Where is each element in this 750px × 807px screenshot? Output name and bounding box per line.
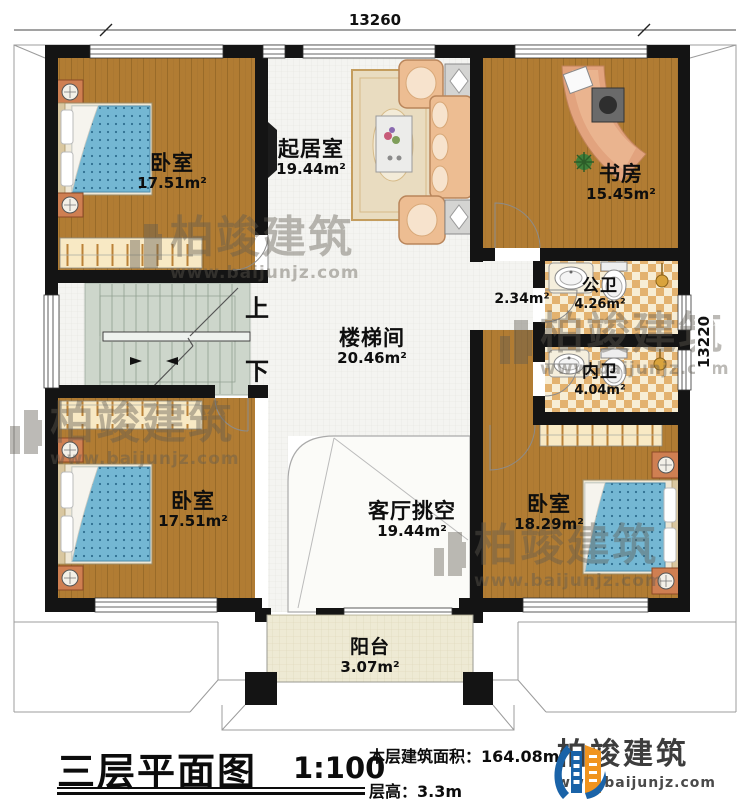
stairs-down-label: 下 — [245, 352, 269, 387]
title-block: 三层平面图 1:100 本层建筑面积：164.08m² 层高：3.3m 柏竣建筑… — [0, 735, 750, 807]
shower-head — [656, 275, 668, 287]
wardrobe — [60, 238, 202, 268]
floor-height-value: 3.3m — [417, 782, 462, 801]
toilet — [601, 349, 627, 358]
plan-info: 本层建筑面积：164.08m² 层高：3.3m — [369, 743, 566, 802]
floor-plan-drawing — [0, 0, 750, 735]
column — [245, 672, 277, 705]
title-underline — [57, 792, 365, 795]
balcony-structure — [245, 615, 493, 705]
column — [463, 672, 493, 705]
wardrobe — [60, 401, 202, 429]
title-underline — [57, 787, 365, 789]
tv — [268, 122, 277, 178]
void-opening — [288, 436, 470, 612]
dimension-top: 13260 — [343, 11, 407, 29]
dimension-right: 13220 — [695, 310, 713, 374]
floor-height-label: 层高： — [369, 782, 417, 801]
company-logo: 柏竣建筑 www.baijunjz.com — [549, 737, 716, 791]
company-logo-icon — [549, 737, 611, 803]
staircase — [85, 283, 250, 395]
shower-head — [654, 358, 666, 370]
floor-area-label: 本层建筑面积： — [369, 747, 481, 766]
coffee-table — [376, 116, 412, 172]
floor-plan-page: 柏竣建筑 www.baijunjz.com 柏竣建筑 www.baijunjz.… — [0, 0, 750, 807]
stairs-up-label: 上 — [245, 289, 269, 324]
